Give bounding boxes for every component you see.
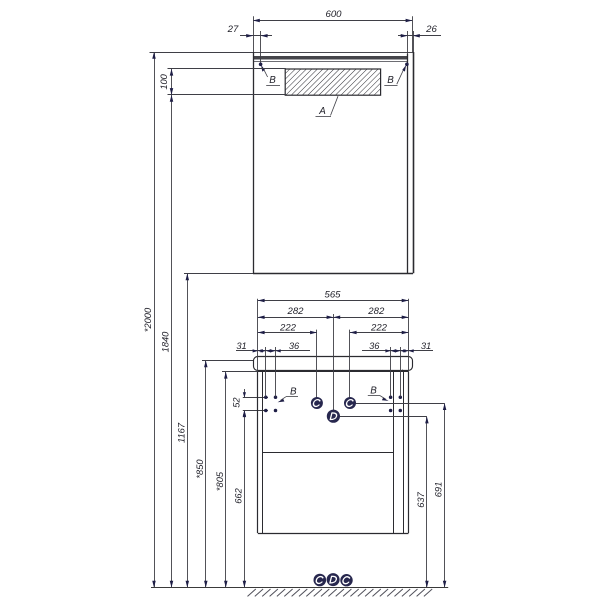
svg-text:*805: *805 — [215, 471, 225, 491]
svg-text:B: B — [269, 75, 276, 86]
svg-text:662: 662 — [233, 487, 243, 503]
svg-text:600: 600 — [325, 9, 342, 20]
svg-text:36: 36 — [369, 341, 380, 351]
svg-text:*2000: *2000 — [143, 307, 153, 332]
svg-text:52: 52 — [232, 397, 242, 408]
svg-text:222: 222 — [370, 322, 388, 333]
svg-text:282: 282 — [286, 306, 304, 317]
svg-text:36: 36 — [289, 341, 300, 351]
svg-text:*850: *850 — [195, 459, 205, 479]
svg-text:B: B — [387, 75, 394, 86]
svg-text:B: B — [290, 387, 297, 398]
svg-text:1840: 1840 — [161, 331, 171, 353]
svg-text:27: 27 — [227, 24, 239, 35]
svg-text:31: 31 — [421, 341, 431, 351]
svg-text:222: 222 — [279, 322, 297, 333]
svg-text:31: 31 — [236, 341, 246, 351]
svg-text:565: 565 — [324, 290, 341, 301]
svg-text:691: 691 — [434, 482, 444, 498]
svg-text:1167: 1167 — [176, 422, 186, 443]
svg-text:637: 637 — [416, 491, 426, 507]
svg-text:26: 26 — [425, 24, 437, 35]
svg-text:282: 282 — [367, 306, 385, 317]
svg-text:A: A — [318, 106, 326, 117]
svg-text:100: 100 — [159, 73, 169, 89]
svg-text:B: B — [370, 385, 377, 396]
